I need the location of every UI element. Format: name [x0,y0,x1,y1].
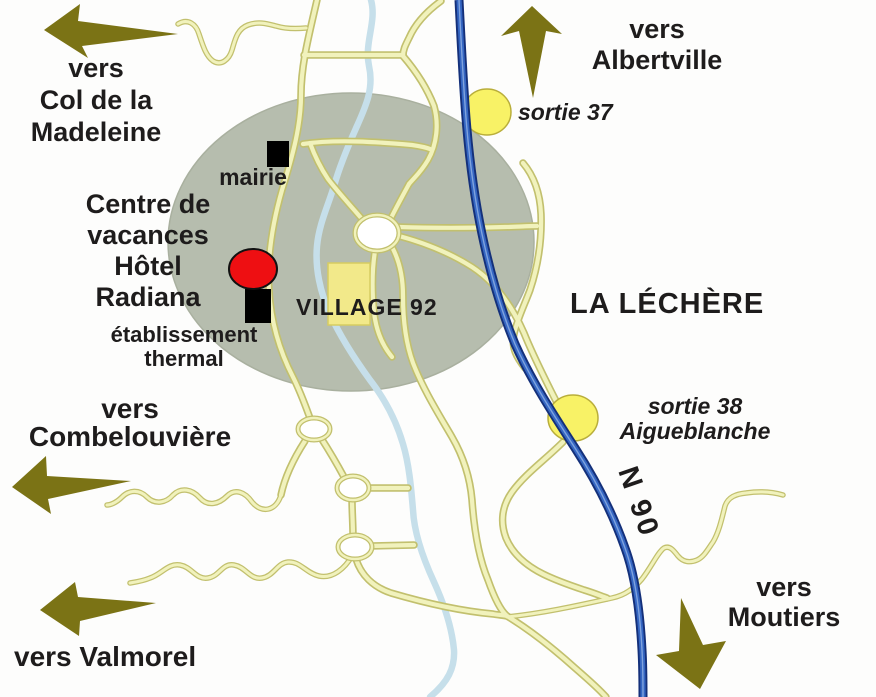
label-la-lechere: LA LÉCHÈRE [570,288,764,321]
label-thermal-establishment: établissement thermal [80,323,288,371]
label-exit-37: sortie 37 [518,99,613,126]
label-line: Radiana [36,282,260,313]
label-line: Col de la [0,84,192,116]
label-line: vers [562,14,752,45]
arrow-left-valmorel-icon [40,582,156,636]
label-line: vers [0,52,192,84]
label-line: Combelouvière [0,423,260,451]
label-town-hall: mairie [200,164,306,191]
label-line: vers [0,395,260,423]
label-exit-38-aigueblanche: sortie 38 Aigueblanche [592,394,798,444]
arrow-up-left-madeleine-icon [44,4,178,58]
label-direction-moutiers: vers Moutiers [690,572,876,632]
label-line: sortie 38 [592,394,798,419]
roundabout [338,535,372,559]
label-line: établissement [80,323,288,347]
arrow-up-albertville-icon [501,6,562,98]
roundabout [337,476,369,500]
map-canvas: vers Col de la Madeleine vers Albertvill… [0,0,876,697]
label-line: Albertville [562,45,752,76]
label-line: Hôtel [36,251,260,282]
label-direction-albertville: vers Albertville [562,14,752,76]
central-roundabout [355,215,399,251]
roundabout [298,418,330,440]
label-line: Aigueblanche [592,419,798,444]
label-line: thermal [80,347,288,371]
label-line: Madeleine [0,116,192,148]
label-line: Centre de [36,189,260,220]
label-direction-valmorel: vers Valmorel [14,641,196,673]
label-line: vacances [36,220,260,251]
label-holiday-center-hotel-radiana: Centre de vacances Hôtel Radiana [36,189,260,313]
label-direction-combelouviere: vers Combelouvière [0,395,260,451]
label-direction-madeleine: vers Col de la Madeleine [0,52,192,148]
label-line: vers [690,572,876,602]
label-village-92: VILLAGE 92 [296,294,438,321]
label-line: Moutiers [690,602,876,632]
